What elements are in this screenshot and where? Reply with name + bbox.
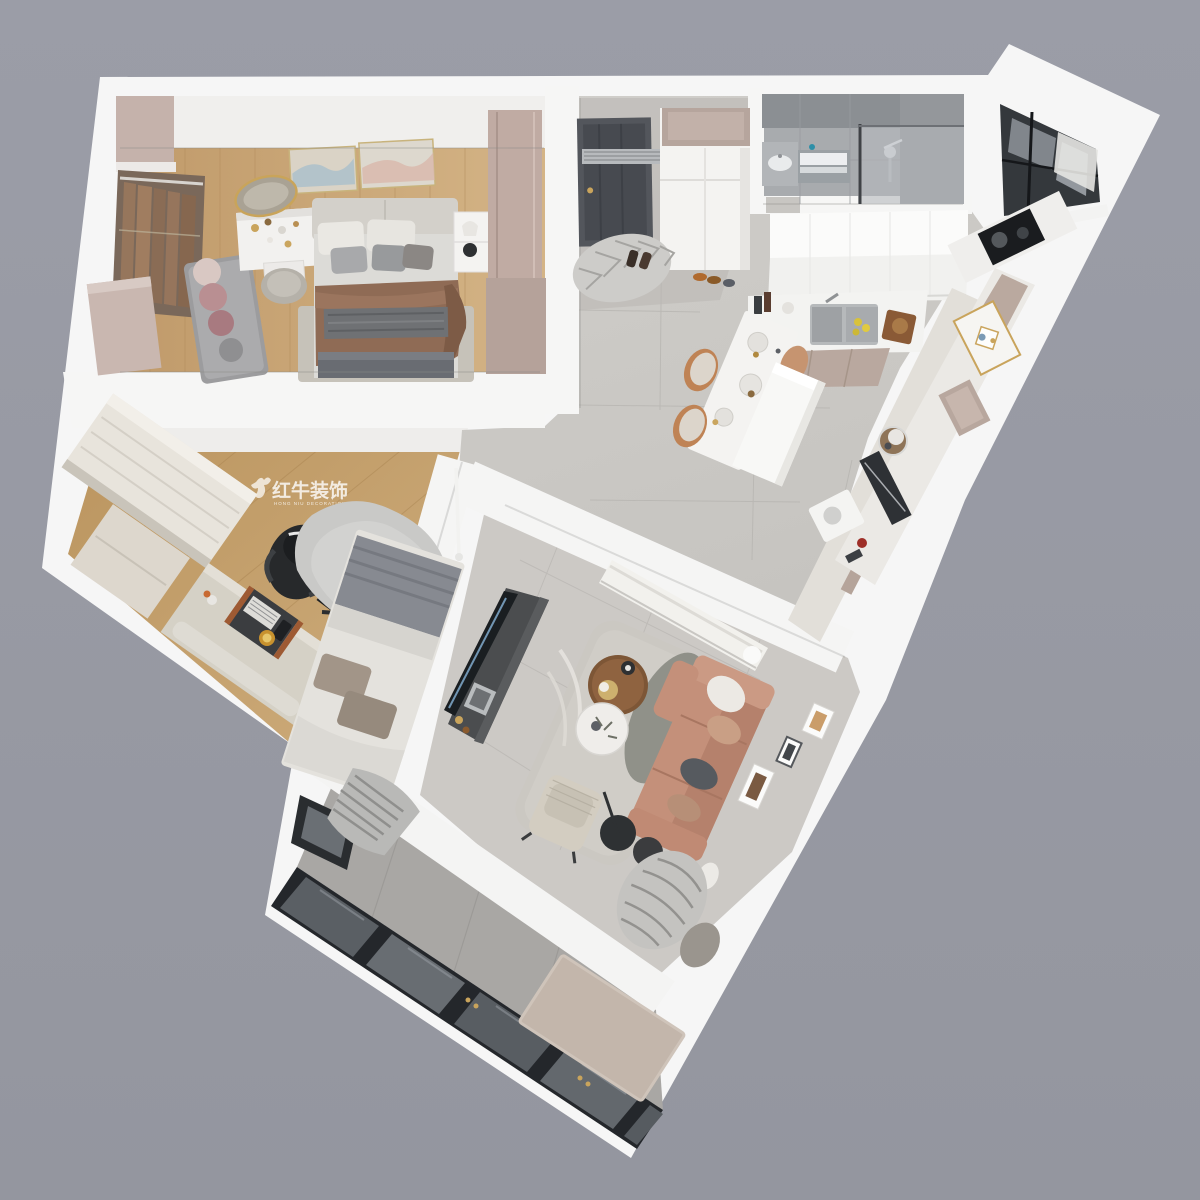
svg-text:红牛装饰: 红牛装饰 — [272, 479, 348, 502]
